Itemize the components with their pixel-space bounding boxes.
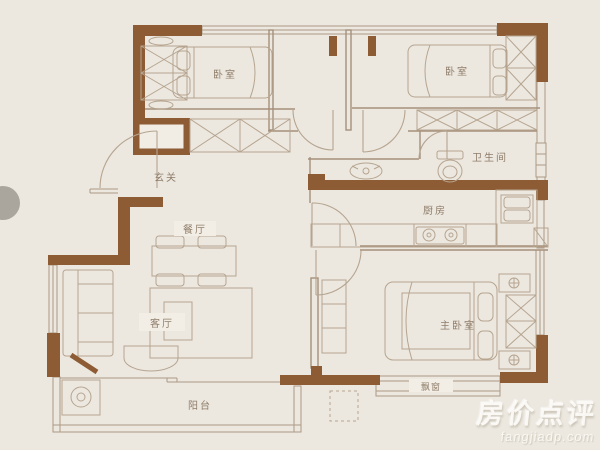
label-master-bedroom: 主卧室: [440, 319, 476, 332]
fridge: [534, 228, 548, 247]
wardrobe-master: [506, 295, 536, 348]
cabinet-bathroom-top: [417, 110, 537, 130]
stove: [416, 227, 464, 244]
nightstand-bottom: [499, 351, 530, 369]
kitchen-counter: [311, 224, 497, 247]
label-living: 客厅: [150, 317, 174, 330]
label-dining: 餐厅: [183, 223, 207, 236]
label-kitchen: 厨房: [423, 204, 447, 217]
washbasin: [350, 163, 382, 179]
label-balcony: 阳台: [188, 399, 212, 412]
sofa: [63, 270, 113, 356]
corner-shelf: [71, 355, 97, 372]
equipment-platform: [330, 391, 358, 421]
floorplan-image: 卧室 卧室 卫生间 厨房 玄关 餐厅 客厅 主卧室 飘窗 阳台 房价点评 fan…: [0, 0, 600, 450]
interior-walls: [135, 30, 548, 368]
washing-machine: [62, 380, 100, 415]
dining-table: [152, 236, 236, 286]
shoe-cabinet-hallway: [190, 119, 290, 152]
label-bathroom: 卫生间: [472, 151, 508, 164]
kitchen-sink: [496, 190, 537, 247]
floorplan-canvas: 卧室 卧室 卫生间 厨房 玄关 餐厅 客厅 主卧室 飘窗 阳台: [0, 0, 600, 450]
label-bedroom-right: 卧室: [445, 65, 469, 78]
toilet: [437, 151, 463, 182]
wardrobe-right-bedroom: [506, 36, 536, 100]
entry-column-core: [139, 124, 184, 149]
label-bay-window: 飘窗: [421, 381, 441, 392]
nightstand-top: [499, 274, 530, 292]
label-hallway: 玄关: [154, 171, 178, 184]
label-bedroom-left: 卧室: [213, 68, 237, 81]
